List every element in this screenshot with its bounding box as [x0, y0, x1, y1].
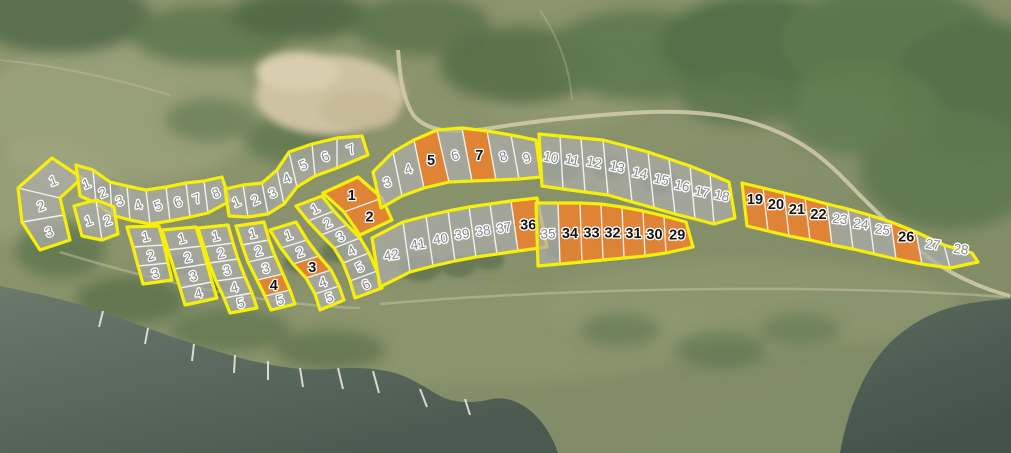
parcel-label-24: 24	[852, 215, 869, 232]
parcel-label-4: 4	[270, 278, 278, 294]
parcel-label-1: 1	[348, 188, 356, 204]
map-canvas: 1231234567812123123412345123451234512345…	[0, 0, 1011, 453]
parcel-label-13: 13	[608, 158, 626, 176]
parcel-label-3: 3	[308, 260, 316, 276]
cluster-west-pair: 12	[74, 200, 118, 240]
parcel-label-26: 26	[898, 229, 914, 245]
parcel-label-32: 32	[604, 225, 620, 241]
parcel-label-2: 2	[365, 209, 373, 225]
parcel-label-23: 23	[831, 210, 848, 227]
parcel-label-33: 33	[583, 225, 599, 241]
parcel-label-37: 37	[496, 219, 513, 236]
parcel-label-10: 10	[542, 149, 560, 167]
parcel-label-38: 38	[475, 222, 492, 239]
parcel-label-21: 21	[789, 202, 805, 218]
parcel-label-39: 39	[454, 226, 471, 243]
parcel-label-19: 19	[747, 192, 763, 208]
aerial-parcel-map: 1231234567812123123412345123451234512345…	[0, 0, 1011, 453]
parcel-label-34: 34	[562, 226, 578, 242]
parcel-label-16: 16	[673, 177, 691, 195]
parcel-label-20: 20	[768, 197, 784, 213]
parcel-label-31: 31	[625, 226, 641, 242]
parcel-label-41: 41	[410, 236, 427, 253]
parcel-label-25: 25	[874, 221, 891, 238]
parcel-label-30: 30	[646, 227, 662, 243]
parcel-label-27: 27	[924, 236, 941, 253]
parcel-label-29: 29	[669, 228, 685, 244]
parcel-label-42: 42	[383, 246, 400, 263]
parcel-label-28: 28	[952, 241, 969, 258]
parcel-label-7: 7	[475, 148, 483, 164]
parcel-label-40: 40	[432, 230, 449, 247]
parcel-label-36: 36	[520, 217, 536, 233]
parcel-label-17: 17	[693, 183, 711, 201]
parcel-label-12: 12	[585, 154, 603, 172]
parcel-label-18: 18	[713, 187, 731, 205]
parcel-label-15: 15	[653, 171, 671, 189]
parcel-label-22: 22	[810, 207, 826, 223]
parcel-label-35: 35	[540, 227, 555, 242]
parcel-label-5: 5	[427, 153, 435, 169]
